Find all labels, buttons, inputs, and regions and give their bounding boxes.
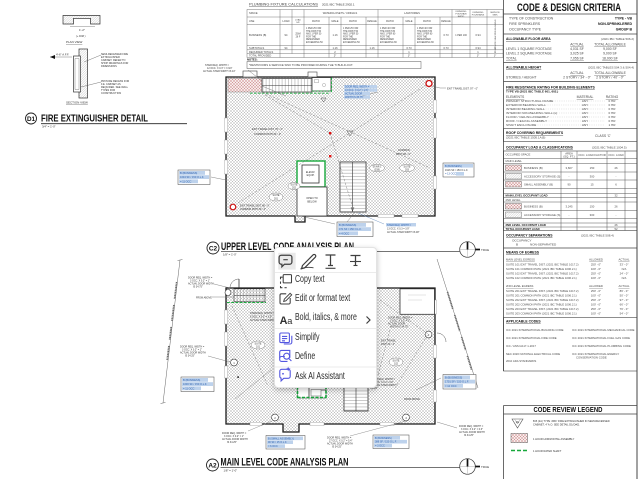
svg-text:2021 IBC TABLE 2902.1: 2021 IBC TABLE 2902.1 bbox=[322, 3, 355, 7]
svg-text:TOTAL OCCUPANT LOAD: TOTAL OCCUPANT LOAD bbox=[506, 227, 540, 231]
svg-text:2ND LEVEL EGRESS: 2ND LEVEL EGRESS bbox=[506, 284, 534, 288]
svg-text:EXIT TRAVEL DIST. 97' - 0": EXIT TRAVEL DIST. 97' - 0" bbox=[447, 88, 478, 91]
svg-text:COMMON PATH 34' - 0": COMMON PATH 34' - 0" bbox=[254, 133, 281, 136]
svg-text:PLAN VIEW: PLAN VIEW bbox=[66, 40, 83, 44]
svg-text:FOR THE: FOR THE bbox=[417, 36, 428, 38]
svg-text:ICC / ANSI A117.1-2017: ICC / ANSI A117.1-2017 bbox=[506, 344, 536, 348]
svg-text:2 STORY / 40' - 0": 2 STORY / 40' - 0" bbox=[596, 76, 624, 80]
svg-text:ALLOWED: ALLOWED bbox=[589, 284, 603, 288]
svg-text:3,025 SF: 3,025 SF bbox=[570, 52, 584, 56]
svg-text:AND 1 PER 80: AND 1 PER 80 bbox=[380, 33, 396, 36]
svg-text:WIDTH IS 35.75": WIDTH IS 35.75" bbox=[345, 96, 363, 99]
svg-text:FEMALE: FEMALE bbox=[367, 20, 377, 23]
svg-text:EXCEEDING 80: EXCEEDING 80 bbox=[417, 42, 434, 44]
svg-text:1.16: 1.16 bbox=[369, 46, 375, 50]
svg-text:2ND LEVEL: 2ND LEVEL bbox=[506, 198, 522, 202]
svg-text:IS 34.25": IS 34.25" bbox=[185, 355, 195, 358]
svg-text:100' - 0": 100' - 0" bbox=[591, 294, 601, 298]
svg-text:TYPE VB (2021 IBC TABLE 601, 6: TYPE VB (2021 IBC TABLE 601, 602.) bbox=[506, 90, 558, 94]
svg-text:B: B bbox=[516, 243, 518, 247]
svg-text:1 PER 25 FOR: 1 PER 25 FOR bbox=[343, 28, 359, 30]
svg-text:300: 300 bbox=[590, 175, 595, 179]
svg-text:250' - 0": 250' - 0" bbox=[591, 263, 601, 267]
svg-text:FROM ABOVE: FROM ABOVE bbox=[196, 297, 212, 300]
svg-text:2*: 2* bbox=[334, 54, 336, 58]
svg-text:RATIO: RATIO bbox=[386, 19, 394, 23]
svg-text:100' - 0": 100' - 0" bbox=[591, 303, 601, 307]
svg-text:300: 300 bbox=[590, 213, 595, 217]
svg-text:D1: D1 bbox=[27, 116, 36, 123]
svg-text:BUSINESS (B): BUSINESS (B) bbox=[524, 205, 543, 209]
svg-text:ACTUAL STAIR WIDTH IS 48": ACTUAL STAIR WIDTH IS 48" bbox=[387, 231, 420, 234]
svg-text:SECTION VIEW: SECTION VIEW bbox=[66, 101, 88, 105]
svg-text:1*: 1* bbox=[494, 54, 496, 58]
svg-text:1: 1 bbox=[408, 50, 410, 54]
svg-text:AND 1 PER 80: AND 1 PER 80 bbox=[417, 33, 433, 36]
svg-text:ICC 2021 INTERNATIONAL PLUMBIN: ICC 2021 INTERNATIONAL PLUMBING CODE bbox=[572, 344, 631, 348]
svg-text:BELOW: BELOW bbox=[307, 200, 317, 204]
svg-text:SMALL ASSEMBLY (B): SMALL ASSEMBLY (B) bbox=[524, 183, 553, 187]
svg-text:1701 SF / 150 O.L.F.: 1701 SF / 150 O.L.F. bbox=[445, 380, 469, 384]
svg-text:(2021 IBC TABLES 504.3 & 504.4: (2021 IBC TABLES 504.3 & 504.4) bbox=[588, 66, 634, 70]
svg-text:ACTUAL: ACTUAL bbox=[618, 258, 629, 262]
svg-text:OCCUPANCY: OCCUPANCY bbox=[512, 239, 532, 243]
svg-text:REMAINDER: REMAINDER bbox=[380, 38, 394, 41]
svg-text:2: 2 bbox=[334, 50, 336, 54]
svg-text:32: 32 bbox=[614, 194, 618, 198]
svg-text:33' - 0": 33' - 0" bbox=[620, 263, 629, 267]
svg-text:1*: 1* bbox=[477, 54, 479, 58]
svg-text:ACTUAL: ACTUAL bbox=[618, 284, 629, 288]
svg-text:TOTAL: TOTAL bbox=[506, 57, 517, 61]
svg-text:4'-6" A.F.F.: 4'-6" A.F.F. bbox=[56, 53, 69, 57]
svg-text:SUITE 102 COMMON PATH (2021 IB: SUITE 102 COMMON PATH (2021 IBC TABLE 10… bbox=[506, 276, 577, 280]
svg-text:ACCESSORY STORAGE (S): ACCESSORY STORAGE (S) bbox=[524, 213, 560, 217]
svg-text:90 SF / 15 O.L.F.: 90 SF / 15 O.L.F. bbox=[268, 441, 287, 444]
svg-text:CODE & DESIGN CRITERIA: CODE & DESIGN CRITERIA bbox=[517, 2, 621, 14]
svg-text:1/8" = 1'-0": 1/8" = 1'-0" bbox=[223, 253, 237, 257]
svg-text:SHAFT ENCLOSURE: SHAFT ENCLOSURE bbox=[506, 123, 536, 127]
svg-text:389 SF / 150 O.L.F.: 389 SF / 150 O.L.F. bbox=[375, 441, 397, 444]
svg-text:SUITE 203 EXIT TRAVEL DIST. (2: SUITE 203 EXIT TRAVEL DIST. (2021 IBC TA… bbox=[506, 307, 579, 311]
svg-text:USE: USE bbox=[249, 19, 255, 23]
svg-text:SUITE 201 EXIT TRAVEL DIST. (2: SUITE 201 EXIT TRAVEL DIST. (2021 IBC TA… bbox=[506, 289, 579, 293]
svg-text:7,056 SF: 7,056 SF bbox=[570, 57, 584, 61]
svg-text:OCCUPANCY LOAD & CLASSIFICATIO: OCCUPANCY LOAD & CLASSIFICATIONS bbox=[506, 146, 574, 150]
svg-text:FOR THE: FOR THE bbox=[306, 36, 317, 38]
svg-text:0.94: 0.94 bbox=[475, 46, 481, 50]
svg-text:SUITE 101 COMMON PATH (2021 IB: SUITE 101 COMMON PATH (2021 IBC TABLE 10… bbox=[506, 267, 577, 271]
svg-text:TYPE OF CONSTRUCTION: TYPE OF CONSTRUCTION bbox=[509, 17, 554, 21]
svg-text:1916 SF / 150 O.L.F.: 1916 SF / 150 O.L.F. bbox=[445, 169, 468, 172]
svg-text:FEMALE: FEMALE bbox=[441, 20, 451, 23]
svg-text:202: 202 bbox=[292, 187, 297, 190]
svg-text:RATIO: RATIO bbox=[458, 15, 465, 18]
svg-text:SUITE 203 COMMON PATH (2021 IB: SUITE 203 COMMON PATH (2021 IBC TABLE 10… bbox=[506, 312, 577, 316]
svg-text:ACTUAL: ACTUAL bbox=[570, 43, 583, 47]
svg-text:LOAD: LOAD bbox=[295, 19, 301, 22]
svg-text:N/A: N/A bbox=[622, 276, 627, 280]
svg-text:SUITE 202 COMMON PATH (2021 IB: SUITE 202 COMMON PATH (2021 IBC TABLE 10… bbox=[506, 303, 577, 307]
svg-text:3,245: 3,245 bbox=[566, 205, 573, 209]
svg-text:COMMON: COMMON bbox=[398, 149, 410, 152]
svg-text:3,607: 3,607 bbox=[566, 166, 573, 170]
svg-text:AND 1 PER 50: AND 1 PER 50 bbox=[343, 33, 359, 36]
svg-text:94: 94 bbox=[285, 33, 288, 37]
svg-text:MALE: MALE bbox=[405, 19, 412, 23]
svg-text:ICC 2021 INTERNATIONAL MECHANI: ICC 2021 INTERNATIONAL MECHANICAL CODE bbox=[572, 328, 635, 332]
svg-text:GROUP B: GROUP B bbox=[616, 28, 633, 32]
svg-text:1'-2": 1'-2" bbox=[79, 28, 85, 32]
svg-text:(2021 IBC TABLE 1004.5): (2021 IBC TABLE 1004.5) bbox=[592, 146, 627, 150]
svg-text:(2021 IBC TABLE 506.2): (2021 IBC TABLE 506.2) bbox=[601, 37, 634, 41]
svg-text:26 F: 26 F bbox=[296, 36, 301, 39]
svg-text:FOR THE: FOR THE bbox=[343, 36, 354, 38]
svg-text:-: - bbox=[569, 175, 570, 179]
svg-text:250' - 0": 250' - 0" bbox=[591, 272, 601, 276]
svg-text:MALE: MALE bbox=[331, 19, 338, 23]
svg-text:CODE REVIEW LEGEND: CODE REVIEW LEGEND bbox=[534, 407, 603, 414]
svg-text:REQUIRED TOTALS: REQUIRED TOTALS bbox=[249, 50, 273, 54]
svg-text:101: 101 bbox=[256, 346, 261, 349]
svg-text:REMAINDER: REMAINDER bbox=[417, 38, 431, 41]
svg-text:FIRE SPRINKLERS: FIRE SPRINKLERS bbox=[509, 22, 541, 26]
svg-text:NON-SEPARATED: NON-SEPARATED bbox=[530, 243, 557, 247]
svg-text:250' - 0": 250' - 0" bbox=[591, 289, 601, 293]
svg-text:N/A: N/A bbox=[622, 267, 627, 271]
svg-text:STORIES / HEIGHT: STORIES / HEIGHT bbox=[506, 76, 536, 80]
svg-text:94: 94 bbox=[285, 46, 288, 50]
svg-text:(2021 IBC TABLE 508.4): (2021 IBC TABLE 508.4) bbox=[581, 234, 614, 238]
svg-text:SUITE 101 EXIT TRAVEL DIST. (2: SUITE 101 EXIT TRAVEL DIST. (2021 IBC TA… bbox=[506, 263, 579, 267]
svg-text:COMMON PATH 30' - 0": COMMON PATH 30' - 0" bbox=[240, 208, 266, 211]
svg-text:ICC 2021 INTERNATIONAL BUILDIN: ICC 2021 INTERNATIONAL BUILDING CODE bbox=[506, 328, 564, 332]
svg-text:-: - bbox=[616, 175, 617, 179]
svg-text:LAVATORIES: LAVATORIES bbox=[404, 11, 420, 15]
svg-text:86' - 0": 86' - 0" bbox=[620, 289, 629, 293]
svg-text:CONSERVATION CODE: CONSERVATION CODE bbox=[576, 356, 607, 360]
svg-text:THE FIRST 80: THE FIRST 80 bbox=[380, 31, 396, 33]
svg-text:(+ DIM ): (+ DIM ) bbox=[76, 34, 86, 38]
svg-text:ICC 2021 INTERNATIONAL FUEL GA: ICC 2021 INTERNATIONAL FUEL GAS CODE bbox=[572, 336, 630, 340]
svg-text:-: - bbox=[616, 213, 617, 217]
svg-text:C2: C2 bbox=[209, 246, 218, 253]
svg-text:15: 15 bbox=[590, 183, 594, 187]
svg-text:NOTES:: NOTES: bbox=[247, 57, 258, 61]
svg-text:FOUNTAIN: FOUNTAIN bbox=[455, 13, 466, 16]
svg-text:CLASS 'C': CLASS 'C' bbox=[595, 134, 611, 138]
svg-text:(2021 IBC TABLE 1505.1A,B): (2021 IBC TABLE 1505.1A,B) bbox=[506, 136, 545, 140]
svg-text:THE FIRST 80: THE FIRST 80 bbox=[417, 31, 433, 33]
svg-text:OCCUPANCY TYPE: OCCUPANCY TYPE bbox=[509, 28, 542, 32]
svg-text:FOUNTAINS: FOUNTAINS bbox=[472, 14, 485, 17]
svg-text:SUITE 201 COMMON PATH (2021 IB: SUITE 201 COMMON PATH (2021 IBC TABLE 10… bbox=[506, 294, 577, 298]
svg-text:9,000 SF: 9,000 SF bbox=[603, 52, 617, 56]
svg-text:1 HOUR RATED SHAFT: 1 HOUR RATED SHAFT bbox=[533, 449, 562, 453]
svg-text:LEVEL 1 SQUARE FOOTAGE: LEVEL 1 SQUARE FOOTAGE bbox=[506, 47, 553, 51]
svg-text:201: 201 bbox=[274, 197, 279, 200]
svg-text:RATIO: RATIO bbox=[423, 19, 431, 23]
svg-text:EQUIP.: EQUIP. bbox=[307, 174, 315, 177]
svg-text:= 6 OCC: = 6 OCC bbox=[268, 445, 278, 448]
svg-text:SPACE: SPACE bbox=[249, 11, 258, 15]
svg-text:100' - 0": 100' - 0" bbox=[591, 312, 601, 316]
svg-text:250' - 0": 250' - 0" bbox=[591, 307, 601, 311]
svg-text:A2: A2 bbox=[208, 463, 217, 470]
svg-text:1 HOUR HORIZONTAL ASSEMBLY: 1 HOUR HORIZONTAL ASSEMBLY bbox=[533, 437, 575, 441]
svg-text:FIRE EXTINGUISHER DETAIL: FIRE EXTINGUISHER DETAIL bbox=[41, 113, 148, 125]
svg-text:(SQ. FT.): (SQ. FT.) bbox=[563, 155, 574, 159]
svg-text:102: 102 bbox=[394, 363, 399, 366]
svg-text:ICC 2021 INTERNATIONAL FIRE CO: ICC 2021 INTERNATIONAL FIRE CODE bbox=[506, 336, 557, 340]
svg-text:B (BUSINESS): B (BUSINESS) bbox=[180, 171, 197, 175]
svg-text:MAIN LEVEL CODE ANALYSIS PLAN: MAIN LEVEL CODE ANALYSIS PLAN bbox=[221, 457, 349, 469]
svg-text:1 PER 40 FOR: 1 PER 40 FOR bbox=[417, 28, 433, 30]
svg-text:203: 203 bbox=[405, 169, 410, 172]
svg-text:SUITE 202 EXIT TRAVEL DIST. (2: SUITE 202 EXIT TRAVEL DIST. (2021 IBC TA… bbox=[506, 298, 579, 302]
svg-text:EXCEEDING 50: EXCEEDING 50 bbox=[343, 42, 360, 44]
svg-text:0.73: 0.73 bbox=[406, 46, 412, 50]
svg-text:OCCUPANCY SEPARATIONS: OCCUPANCY SEPARATIONS bbox=[506, 234, 553, 238]
svg-text:*RESTROOMS & SERVICE SINK TO B: *RESTROOMS & SERVICE SINK TO BE PROVIDED… bbox=[249, 63, 353, 67]
svg-text:ALLOWABLE HEIGHT: ALLOWABLE HEIGHT bbox=[506, 66, 542, 70]
svg-text:0.94: 0.94 bbox=[475, 33, 481, 37]
svg-text:2010 ADA STANDARDS: 2010 ADA STANDARDS bbox=[506, 359, 536, 363]
svg-text:IS 34.75": IS 34.75" bbox=[193, 286, 203, 289]
svg-text:ALLOWED: ALLOWED bbox=[589, 258, 603, 262]
svg-text:EXCEEDING 80: EXCEEDING 80 bbox=[380, 42, 397, 44]
svg-text:1 PER 40 FOR: 1 PER 40 FOR bbox=[380, 28, 396, 30]
svg-text:150: 150 bbox=[590, 166, 595, 170]
svg-text:1 PER 25 FOR: 1 PER 25 FOR bbox=[306, 28, 322, 30]
svg-text:FE: FE bbox=[516, 420, 520, 424]
svg-text:OCC. LOAD FACTOR: OCC. LOAD FACTOR bbox=[578, 153, 605, 157]
svg-text:1 PER 100: 1 PER 100 bbox=[455, 34, 467, 37]
svg-text:4,031 SF: 4,031 SF bbox=[570, 47, 584, 51]
svg-text:= 3 OCC: = 3 OCC bbox=[375, 445, 385, 448]
svg-text:18,000 SF: 18,000 SF bbox=[602, 57, 618, 61]
svg-text:52: 52 bbox=[614, 227, 618, 231]
svg-text:AND 1 PER 50: AND 1 PER 50 bbox=[306, 33, 322, 36]
svg-text:FOR THE: FOR THE bbox=[380, 36, 391, 38]
svg-text:100' - 0": 100' - 0" bbox=[591, 267, 601, 271]
svg-text:WIDTH IS 34.75": WIDTH IS 34.75" bbox=[390, 326, 408, 329]
svg-text:TRUE: TRUE bbox=[481, 248, 489, 252]
svg-text:DIMENSIONS: DIMENSIONS bbox=[101, 65, 117, 68]
svg-text:B (SMALL ASSEMBLY): B (SMALL ASSEMBLY) bbox=[268, 437, 294, 440]
svg-text:ACCESSORY STORAGE (S): ACCESSORY STORAGE (S) bbox=[524, 175, 560, 179]
svg-text:MAIN LEVEL EGRESS: MAIN LEVEL EGRESS bbox=[506, 258, 535, 262]
svg-text:RATIO: RATIO bbox=[312, 19, 320, 23]
svg-text:SUBTOTALS: SUBTOTALS bbox=[249, 46, 264, 50]
svg-text:0.73: 0.73 bbox=[443, 33, 449, 37]
svg-text:ACTUAL: ACTUAL bbox=[570, 71, 583, 75]
svg-text:MAIN LEVEL: MAIN LEVEL bbox=[506, 159, 523, 163]
svg-text:1: 1 bbox=[477, 50, 479, 54]
svg-text:CONSTRUCTION: CONSTRUCTION bbox=[101, 92, 121, 95]
svg-text:150: 150 bbox=[590, 205, 595, 209]
svg-text:97' - 0": 97' - 0" bbox=[620, 298, 629, 302]
svg-text:1 HR: 1 HR bbox=[608, 123, 616, 127]
svg-text:6: 6 bbox=[615, 183, 617, 187]
svg-text:OPEN TO: OPEN TO bbox=[306, 196, 318, 200]
svg-text:B (BUSINESS): B (BUSINESS) bbox=[375, 437, 392, 440]
svg-text:BUSINESS (B): BUSINESS (B) bbox=[249, 33, 266, 37]
svg-text:1.16: 1.16 bbox=[332, 33, 338, 37]
svg-text:471 SF / 150 O.L.F.: 471 SF / 150 O.L.F. bbox=[339, 227, 362, 231]
svg-text:NON-SPRINKLERED: NON-SPRINKLERED bbox=[598, 22, 633, 26]
svg-text:S/F: S/F bbox=[296, 22, 300, 24]
svg-text:LEVEL 2 SQUARE FOOTAGE: LEVEL 2 SQUARE FOOTAGE bbox=[506, 52, 553, 56]
svg-text:B (BUSINESS): B (BUSINESS) bbox=[183, 378, 200, 382]
svg-text:B (BUSINESS): B (BUSINESS) bbox=[445, 376, 462, 380]
svg-text:WATERCLOSETS / URINALS: WATERCLOSETS / URINALS bbox=[323, 11, 358, 15]
svg-text:ROOF COVERING REQUIREMENTS: ROOF COVERING REQUIREMENTS bbox=[506, 131, 564, 135]
svg-text:54' - 0": 54' - 0" bbox=[620, 312, 629, 316]
svg-text:250' - 0": 250' - 0" bbox=[591, 298, 601, 302]
svg-text:DIST. 24' - 0": DIST. 24' - 0" bbox=[381, 343, 395, 346]
svg-text:EXCEEDING 50: EXCEEDING 50 bbox=[306, 42, 323, 44]
svg-text:THE FIRST 50: THE FIRST 50 bbox=[343, 31, 359, 33]
svg-text:EXIT TRAVEL DIST. 76' - 0": EXIT TRAVEL DIST. 76' - 0" bbox=[252, 128, 283, 131]
svg-text:1/8" = 1'-0": 1/8" = 1'-0" bbox=[224, 469, 238, 473]
svg-text:BUSINESS (B): BUSINESS (B) bbox=[524, 166, 543, 170]
svg-text:REMAINDER: REMAINDER bbox=[306, 38, 320, 41]
svg-text:IS 34.25": IS 34.25" bbox=[464, 434, 474, 437]
svg-text:TYPE - VB: TYPE - VB bbox=[615, 17, 633, 21]
svg-text:APPLICABLE CODES: APPLICABLE CODES bbox=[506, 320, 541, 324]
svg-text:NEC 2020 NATIONAL ELECTRICAL C: NEC 2020 NATIONAL ELECTRICAL CODE bbox=[506, 352, 560, 356]
svg-text:1630 SF / 150 O.L.F.: 1630 SF / 150 O.L.F. bbox=[183, 382, 207, 386]
svg-text:B.B (2A) TYPE 'ABC' FIRE EXTIN: B.B (2A) TYPE 'ABC' FIRE EXTINGUISHER IN… bbox=[533, 419, 610, 423]
svg-text:0.73: 0.73 bbox=[443, 46, 449, 50]
svg-text:2 STORY / 34' - 0": 2 STORY / 34' - 0" bbox=[563, 76, 591, 80]
svg-text:LOAD: LOAD bbox=[282, 19, 289, 23]
svg-text:TOTAL ALLOWABLE: TOTAL ALLOWABLE bbox=[594, 43, 626, 47]
svg-text:= 12 OCC: = 12 OCC bbox=[445, 384, 457, 388]
svg-text:ALLOWABLE FLOOR AREA: ALLOWABLE FLOOR AREA bbox=[506, 37, 551, 41]
svg-text:PATH 48' - 0": PATH 48' - 0" bbox=[396, 153, 411, 156]
svg-text:IS 34.25": IS 34.25" bbox=[332, 446, 342, 449]
svg-text:PLUMBING FIXTURE CALCULATIONS: PLUMBING FIXTURE CALCULATIONS bbox=[249, 2, 318, 7]
svg-text:FROM ABOVE: FROM ABOVE bbox=[404, 398, 420, 401]
svg-text:IS 34.25": IS 34.25" bbox=[227, 441, 237, 444]
svg-text:26: 26 bbox=[614, 205, 618, 209]
svg-text:SUITE 102 EXIT TRAVEL DIST. (2: SUITE 102 EXIT TRAVEL DIST. (2021 IBC TA… bbox=[506, 272, 579, 276]
svg-text:26: 26 bbox=[614, 166, 618, 170]
svg-text:B (BUSINESS): B (BUSINESS) bbox=[339, 223, 356, 227]
svg-text:B (BUSINESS): B (BUSINESS) bbox=[445, 165, 462, 168]
svg-text:1634 SF / 150 O.L.F.: 1634 SF / 150 O.L.F. bbox=[180, 175, 204, 179]
svg-text:MEANS OF EGRESS: MEANS OF EGRESS bbox=[506, 251, 540, 255]
svg-text:= 4 OCC: = 4 OCC bbox=[339, 231, 349, 235]
svg-text:a: a bbox=[287, 316, 293, 326]
svg-text:100' - 0": 100' - 0" bbox=[591, 276, 601, 280]
svg-text:= 13 OCC: = 13 OCC bbox=[445, 173, 456, 176]
svg-text:ACTUAL STAIR WIDTH IS 44": ACTUAL STAIR WIDTH IS 44" bbox=[203, 70, 236, 73]
svg-text:1.16: 1.16 bbox=[332, 46, 338, 50]
svg-text:= 11 OCC: = 11 OCC bbox=[180, 179, 192, 183]
svg-text:OCCUPIED SPACE: OCCUPIED SPACE bbox=[506, 153, 531, 157]
svg-text:RATIO: RATIO bbox=[349, 19, 357, 23]
svg-text:REMAINDER: REMAINDER bbox=[343, 38, 357, 41]
svg-text:24' - 0": 24' - 0" bbox=[620, 272, 629, 276]
svg-text:= 11 OCC: = 11 OCC bbox=[183, 386, 195, 390]
svg-text:CABINET, 4' A.O. SEE DETAIL D: CABINET, 4' A.O. SEE DETAIL D1/C#01 bbox=[533, 423, 580, 427]
svg-text:TRUE: TRUE bbox=[481, 465, 489, 469]
svg-text:3/4" = 1'-0": 3/4" = 1'-0" bbox=[42, 125, 56, 129]
svg-text:(21B): (21B) bbox=[374, 169, 380, 172]
svg-text:66' - 0": 66' - 0" bbox=[620, 303, 629, 307]
svg-text:SINK: SINK bbox=[492, 15, 498, 17]
svg-text:90: 90 bbox=[567, 183, 571, 187]
svg-text:9,000 SF: 9,000 SF bbox=[603, 47, 617, 51]
svg-text:76' - 0": 76' - 0" bbox=[620, 307, 629, 311]
svg-text:THE FIRST 50: THE FIRST 50 bbox=[306, 31, 322, 33]
svg-text:50' - 0": 50' - 0" bbox=[620, 294, 629, 298]
svg-text:OCC. LOAD: OCC. LOAD bbox=[608, 153, 623, 157]
svg-text:1*: 1* bbox=[408, 54, 410, 58]
svg-text:TOTAL ALLOWABLE: TOTAL ALLOWABLE bbox=[594, 71, 626, 75]
svg-text:ANY: ANY bbox=[582, 123, 588, 127]
svg-text:-: - bbox=[569, 213, 570, 217]
